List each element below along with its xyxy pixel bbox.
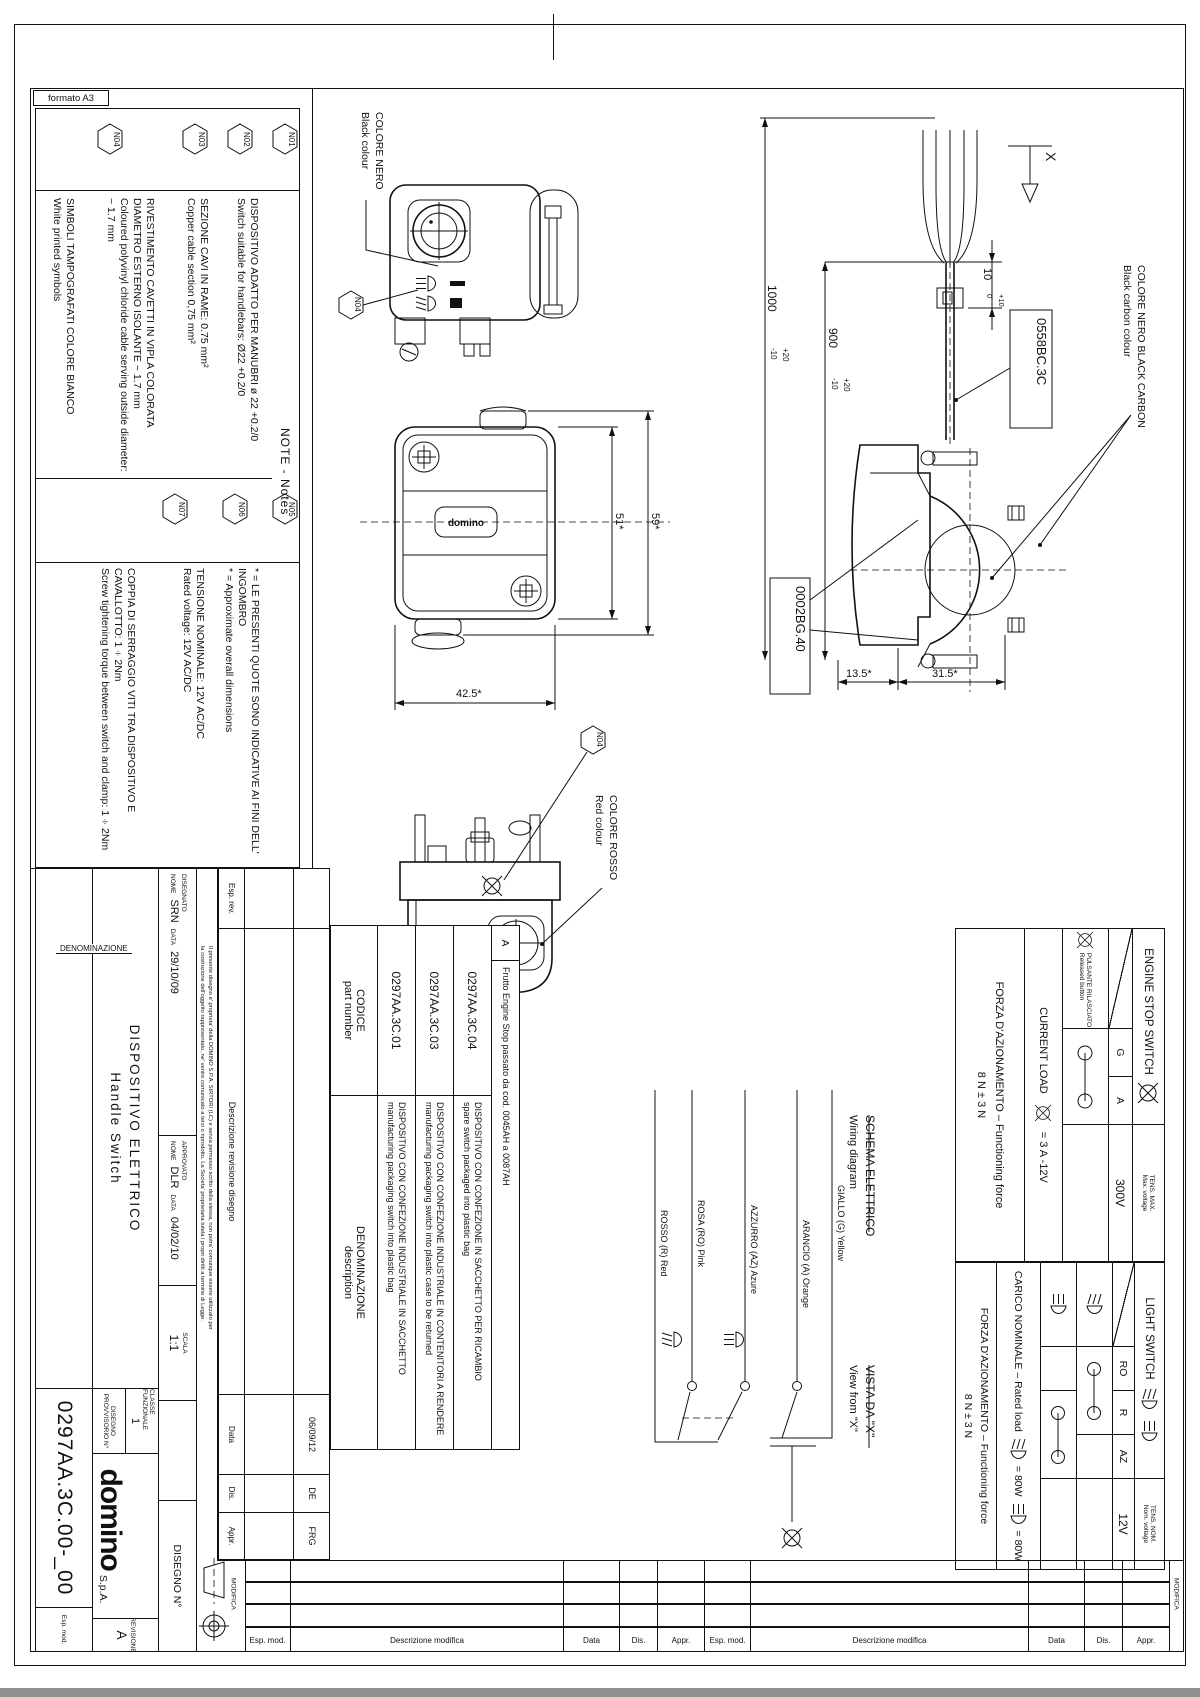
hexagon-N02-icon: N02 <box>228 124 252 154</box>
rated-load-high: = 80W <box>1013 1531 1025 1562</box>
black-carbon-label: COLORE NERO BLACK CARBON Black carbon co… <box>990 265 1147 580</box>
part-code: 0297AA.3C.03 <box>415 926 453 1096</box>
low-beam-icon <box>662 1332 682 1347</box>
dim-1000: 1000 +20 -10 <box>762 118 790 660</box>
note-N02-text: SEZIONE CAVI IN RAME: 0.75 mm² Copper ca… <box>184 198 210 474</box>
part-code: 0297AA.3C.01 <box>377 926 415 1096</box>
svg-text:N05: N05 <box>287 502 296 517</box>
svg-text:View from "X": View from "X" <box>847 1365 859 1432</box>
spa-text: S.p.A. <box>97 1575 109 1604</box>
notes-divider-2 <box>35 478 272 479</box>
light-force-label: FORZA D'AZIONAMENTO – Functioning force <box>978 1308 990 1525</box>
light-contact-closed-R-AZ <box>1040 1391 1076 1479</box>
wiring-schematic: ROSSO (R) Red ROSA (RO) Pink AZZURRO (AZ… <box>620 1070 880 1570</box>
drawn-date: 29/10/09 <box>168 951 180 994</box>
engine-contact-closed-G-A <box>1062 1029 1108 1125</box>
modifica-empty-3 <box>244 869 293 929</box>
view-x-letter: X <box>1043 152 1059 162</box>
part-desc-en: manufacturing packaging switch into plas… <box>386 1102 397 1293</box>
revision-letter: A <box>491 926 519 961</box>
svg-text:-10: -10 <box>769 348 778 360</box>
note-N04-en: White printed symbols <box>50 198 63 474</box>
svg-text:59*: 59* <box>649 513 661 530</box>
approved-date: 04/02/10 <box>168 1217 180 1260</box>
drawing-sheet: formato A3 N04 N03 N02 N01 DISPOSITIVO A… <box>0 0 1200 1697</box>
light-switch-table: LIGHT SWITCH TENS. NOM. Nom. voltage RO … <box>955 1262 1165 1570</box>
note-N05-it: * = LE PRESENTI QUOTE SONO INDICATIVE AI… <box>235 568 261 860</box>
light-vnom-span <box>1076 1479 1112 1569</box>
disegnato-cell: DISEGNATO NOME SRN DATA 29/10/09 <box>158 869 196 1136</box>
part-desc: DISPOSITIVO CON CONFEZIONE INDUSTRIALE I… <box>377 1096 415 1449</box>
footer-appr: Appr. <box>658 1628 704 1652</box>
note-N06-it: TENSIONE NOMINALE: 12V AC/DC <box>193 568 206 860</box>
note-N07-en: Screw tightening torque between switch a… <box>98 568 111 860</box>
note-N02-it: SEZIONE CAVI IN RAME: 0.75 mm² <box>197 198 210 474</box>
light-empty-RO <box>1040 1347 1076 1391</box>
vnom-label-en: Nom. voltage <box>1143 1505 1150 1543</box>
svg-text:51*: 51* <box>613 513 625 530</box>
area-divider <box>312 88 313 868</box>
low-beam-icon <box>1143 1389 1158 1409</box>
part-desc-en: manufacturing packaging switch into plas… <box>424 1102 435 1355</box>
dim-51: 51* <box>558 427 625 619</box>
domino-logo-text: domino <box>97 1469 123 1571</box>
engine-vmax-value: 300V <box>1108 1125 1132 1261</box>
desc-header: DENOMINAZIONE description <box>331 1096 377 1449</box>
svg-text:0: 0 <box>985 294 994 298</box>
engine-force: FORZA D'AZIONAMENTO – Functioning force … <box>956 929 1024 1261</box>
part-desc-en: spare switch packaged into plastic bag <box>462 1102 473 1256</box>
red-colour-label-en: Red colour <box>593 795 605 846</box>
svg-text:10: 10 <box>981 268 993 280</box>
wire-label-rosso: ROSSO (R) Red <box>659 1210 669 1277</box>
light-empty-AZ <box>1076 1435 1112 1479</box>
dim-10: 10 +10 0 <box>968 240 1006 330</box>
footer-dis: Dis. <box>620 1628 658 1652</box>
engine-vmax-span <box>1062 1125 1108 1261</box>
rated-load-low: = 80W <box>1013 1466 1025 1497</box>
engine-stop-contact <box>770 1382 816 1549</box>
clamp-code-label: 0002BG.40 <box>770 520 918 694</box>
dis-header: Dis. <box>218 1475 244 1513</box>
dim-59: 59* <box>463 411 661 635</box>
footer-esp-mod: Esp. mod. <box>705 1628 751 1652</box>
format-label-text: formato A3 <box>48 93 94 104</box>
black-colour-label-en: Black colour <box>359 112 371 170</box>
note-N04-it: SIMBOLI TAMPOGRAFATI COLORE BIANCO <box>63 198 76 474</box>
hexagon-N05-icon: N05 <box>273 494 297 524</box>
engine-stop-symbol-icon <box>782 1528 802 1548</box>
code-header-it: CODICE <box>354 989 366 1032</box>
svg-text:31.5*: 31.5* <box>932 668 958 680</box>
approvato-label: APPROVATO <box>180 1141 187 1180</box>
footer-descrizione: Descrizione modifica <box>751 1628 1029 1652</box>
wire-label-giallo: GIALLO (G) Yellow <box>836 1185 846 1262</box>
hexagon-N06-icon: N06 <box>223 494 247 524</box>
drawing-number: 0297AA.3C.00-_00 <box>36 1389 92 1608</box>
svg-text:-10: -10 <box>830 378 839 390</box>
vnom-label-it: TENS. NOM. <box>1150 1505 1157 1543</box>
svg-text:0558BC.3C: 0558BC.3C <box>1034 318 1049 385</box>
modifica-empty-7 <box>244 1513 293 1559</box>
red-colour-leader <box>542 888 602 944</box>
data-header: Data <box>218 1395 244 1475</box>
code-header: CODICE part number <box>331 926 377 1096</box>
svg-text:Wiring diagram: Wiring diagram <box>847 1115 859 1189</box>
hexagon-N07-icon: N07 <box>163 494 187 524</box>
high-beam-icon <box>1012 1504 1027 1524</box>
note-N03-en: Coloured polyvinyl chloride cable servin… <box>104 198 130 474</box>
note-N01-it: DISPOSITIVO ADATTO PER MANUBRI ø 22 +0.2… <box>247 198 260 474</box>
projection-symbol-icon <box>198 1558 230 1650</box>
svg-text:N02: N02 <box>242 132 251 147</box>
nome-label: NOME <box>169 1141 176 1161</box>
page-edge-shadow <box>0 1688 1200 1697</box>
light-table-title: LIGHT SWITCH <box>1134 1263 1164 1479</box>
note-N04-text: SIMBOLI TAMPOGRAFATI COLORE BIANCO White… <box>50 198 76 474</box>
high-beam-icon <box>1052 1294 1067 1314</box>
format-label: formato A3 <box>33 90 109 106</box>
modifica-dis: DE <box>293 1475 329 1513</box>
note-N06-en: Rated voltage: 12V AC/DC <box>180 568 193 860</box>
scale-value: 1:1 <box>167 1335 181 1352</box>
svg-text:VISTA DA "X": VISTA DA "X" <box>863 1365 877 1437</box>
note-N03-text: RIVESTIMENTO CAVETTI IN VIPLA COLORATA D… <box>104 198 156 474</box>
hexagon-N01-icon: N01 <box>273 124 297 154</box>
light-row-high <box>1040 1263 1076 1347</box>
switch-front-body <box>390 185 578 361</box>
light-switch-contacts <box>662 1332 750 1440</box>
light-rated-load: CARICO NOMINALE – Rated load = 80W = 80W <box>996 1263 1040 1569</box>
desc-header-en: description <box>342 1246 354 1299</box>
svg-text:13.5*: 13.5* <box>846 668 872 680</box>
wire-fan <box>923 130 977 265</box>
appr-header: Appr. <box>218 1513 244 1559</box>
engine-force-label: FORZA D'AZIONAMENTO – Functioning force <box>993 982 1005 1209</box>
device-name-it: DISPOSITIVO ELETTRICO <box>128 1025 143 1233</box>
title-block: DISEGNATO NOME SRN DATA 29/10/09 APPROVA… <box>35 868 197 1652</box>
legal-text: Il presente disegno e' proprieta' della … <box>198 946 214 1554</box>
note-N01-text: DISPOSITIVO ADATTO PER MANUBRI ø 22 +0.2… <box>234 198 260 474</box>
current-load-label: CURRENT LOAD <box>1038 1007 1050 1094</box>
svg-text:0002BG.40: 0002BG.40 <box>793 586 808 652</box>
engine-stop-icon <box>1139 1083 1159 1103</box>
legal-line-2: la costruzione dell'oggetto rappresentat… <box>198 946 206 1554</box>
light-vnom-header: TENS. NOM. Nom. voltage <box>1134 1479 1164 1569</box>
light-force: FORZA D'AZIONAMENTO – Functioning force … <box>956 1263 996 1569</box>
released-label-it: PULSANTE RILASCIATO <box>1086 953 1093 1027</box>
part-number-table: A Frutto Engine Stop passato da cod. 004… <box>330 925 520 1450</box>
device-name-en: Handle Switch <box>109 1072 124 1184</box>
svg-text:900: 900 <box>826 328 840 348</box>
part-desc-it: DISPOSITIVO CON CONFEZIONE INDUSTRIALE I… <box>435 1102 446 1435</box>
vmax-label-it: TENS. MAX. <box>1149 1175 1156 1212</box>
dim-900: 900 +20 -10 <box>822 262 851 660</box>
note-N05-en: * = Approximate overall dimensions <box>222 568 235 860</box>
light-col-RO: RO <box>1112 1347 1134 1391</box>
data-label: DATA <box>169 1195 176 1211</box>
svg-text:N04: N04 <box>595 732 604 747</box>
light-col-R: R <box>1112 1391 1134 1435</box>
red-colour-label-it: COLORE ROSSO <box>607 795 619 880</box>
footer-right-divider <box>1169 1560 1170 1652</box>
note-N03-it: RIVESTIMENTO CAVETTI IN VIPLA COLORATA D… <box>130 198 156 474</box>
revisione-value: A <box>115 1630 130 1639</box>
light-diag-cell <box>1112 1263 1134 1347</box>
engine-table-title: ENGINE STOP SWITCH <box>1132 929 1164 1125</box>
part-desc: DISPOSITIVO CON CONFEZIONE IN SACCHETTO … <box>453 1096 491 1449</box>
footer-descrizione: Descrizione modifica <box>291 1628 564 1652</box>
part-code: 0297AA.3C.04 <box>453 926 491 1096</box>
black-colour-label-it: COLORE NERO <box>373 112 385 190</box>
revisione-label: REVISIONE <box>130 1619 137 1651</box>
high-beam-icon <box>416 276 436 291</box>
modifica-date: 06/09/12 <box>293 1395 329 1475</box>
scala-label: SCALA <box>181 1332 188 1353</box>
modifica-empty-2 <box>293 929 329 1395</box>
cable <box>825 250 970 445</box>
switch-back-body: domino <box>395 407 555 649</box>
esp-mod-cell: Esp. mod. <box>36 1608 92 1651</box>
modifica-footer-label-right: MODIFICA <box>1172 1578 1180 1610</box>
black-colour-leader <box>366 200 438 266</box>
engine-diag-cell <box>1108 929 1132 1029</box>
footer-appr: Appr. <box>1123 1628 1169 1652</box>
nome-label: NOME <box>169 874 176 894</box>
light-vnom-span2 <box>1040 1479 1076 1569</box>
approved-by: DLR <box>168 1167 180 1189</box>
svg-text:N04: N04 <box>112 132 121 147</box>
classe-stack: CLASSE FUNZIONALE 1 DISEGNO PROVVISORIO … <box>92 1389 158 1454</box>
svg-text:SCHEMA ELETTRICO: SCHEMA ELETTRICO <box>863 1115 877 1236</box>
notes-divider-1 <box>35 190 300 191</box>
svg-text:N06: N06 <box>237 502 246 517</box>
svg-text:N03: N03 <box>197 132 206 147</box>
modifica-empty-5 <box>244 1395 293 1475</box>
engine-row-header: PULSANTE RILASCIATO Released button <box>1062 929 1108 1029</box>
part-desc-it: DISPOSITIVO CON CONFEZIONE IN SACCHETTO … <box>473 1102 484 1381</box>
revisione-cell: REVISIONE A <box>92 1619 158 1651</box>
classe-label: CLASSE FUNZIONALE <box>141 1389 155 1453</box>
front-symbols <box>416 276 465 311</box>
hexagon-N04-front-icon: N04 <box>339 290 418 319</box>
engine-current-load: CURRENT LOAD = 3 A -12V <box>1024 929 1062 1261</box>
harness-clamp-drawing: 1000 +20 -10 900 +20 -10 10 +10 0 X 0558… <box>740 100 1160 700</box>
engine-force-value: 8 N ± 3 N <box>975 1072 987 1118</box>
footer-dis: Dis. <box>1085 1628 1123 1652</box>
vmax-label-en: Max. voltage <box>1142 1175 1149 1212</box>
modifica-appr: FRG <box>293 1513 329 1559</box>
code-header-en: part number <box>342 981 354 1040</box>
high-beam-icon <box>724 1332 744 1347</box>
note-N06-text: TENSIONE NOMINALE: 12V AC/DC Rated volta… <box>180 568 206 860</box>
back-view-drawing: domino 51* 59* 42.5* <box>360 395 670 745</box>
footer-data: Data <box>564 1628 620 1652</box>
wire-label-rosa: ROSA (RO) Pink <box>696 1200 706 1268</box>
note-hexagons-row1: N04 N03 N02 N01 <box>35 108 300 190</box>
hexagon-N04-icon: N04 <box>98 124 122 154</box>
logo-on-part: domino <box>448 518 484 529</box>
hexagon-N03-icon: N03 <box>183 124 207 154</box>
scala-cell: SCALA 1:1 <box>158 1286 196 1401</box>
note-N07-text: COPPIA DI SERRAGGIO VITI TRA DISPOSITIVO… <box>98 568 137 860</box>
light-table-title-text: LIGHT SWITCH <box>1144 1297 1156 1379</box>
light-force-value: 8 N ± 3 N <box>962 1394 974 1438</box>
center-tick <box>553 14 554 60</box>
part-desc-it: DISPOSITIVO CON CONFEZIONE INDUSTRIALE I… <box>397 1102 408 1375</box>
svg-text:42.5*: 42.5* <box>456 688 482 700</box>
svg-text:+20: +20 <box>781 348 790 362</box>
engine-col-A: A <box>1108 1077 1132 1125</box>
light-vnom-value: 12V <box>1112 1479 1134 1569</box>
engine-table-title-text: ENGINE STOP SWITCH <box>1143 948 1155 1075</box>
released-label-en: Released button <box>1079 953 1086 1027</box>
modifica-strip: 06/09/12 DE FRG Esp. rev. Descrizione re… <box>217 868 330 1560</box>
svg-text:COLORE NERO BLACK CARBON: COLORE NERO BLACK CARBON <box>1135 265 1147 428</box>
modifica-footer-label-left: MODIFICA <box>229 1578 237 1610</box>
modifica-empty-6 <box>244 1475 293 1513</box>
wire-label-azzurro: AZZURRO (AZ) Azure <box>749 1205 759 1294</box>
schematic-titles: SCHEMA ELETTRICO Wiring diagram VISTA DA… <box>847 1115 877 1448</box>
low-beam-icon <box>416 296 436 311</box>
svg-text:N01: N01 <box>287 132 296 147</box>
footer-table-right: Esp. mod. Descrizione modifica Data Dis.… <box>705 1560 1169 1652</box>
svg-text:+20: +20 <box>842 378 851 392</box>
engine-stop-symbol-icon <box>482 876 502 896</box>
disegno-provvisorio-label: DISEGNO PROVVISORIO N° <box>93 1389 125 1453</box>
svg-text:N07: N07 <box>177 502 186 517</box>
desc-header-it: DENOMINAZIONE <box>354 1226 366 1319</box>
footer-table-left: Esp. mod. Descrizione modifica Data Dis.… <box>245 1560 705 1652</box>
legal-line-1: Il presente disegno e' proprieta' della … <box>206 946 214 1554</box>
drawn-by: SRN <box>168 900 180 923</box>
hexagon-N04-bottom-icon: N04 <box>504 726 605 880</box>
note-N07-it: COPPIA DI SERRAGGIO VITI TRA DISPOSITIVO… <box>111 568 137 860</box>
square-symbol <box>450 298 462 308</box>
light-row-low <box>1076 1263 1112 1347</box>
engine-col-G: G <box>1108 1029 1132 1077</box>
notes-divider-3 <box>35 562 300 563</box>
modifica-empty-4 <box>244 929 293 1395</box>
company-logo: domino S.p.A. <box>92 1454 158 1619</box>
svg-text:+10: +10 <box>997 294 1006 307</box>
note-N01-en: Switch suitable for handlebars: Ø22 +0.2… <box>234 198 247 474</box>
part-desc: DISPOSITIVO CON CONFEZIONE INDUSTRIALE I… <box>415 1096 453 1449</box>
cable-code-label: 0558BC.3C <box>954 310 1052 428</box>
current-load-value: = 3 A -12V <box>1038 1132 1050 1183</box>
footer-esp-mod: Esp. mod. <box>245 1628 291 1652</box>
rated-load-label: CARICO NOMINALE – Rated load <box>1013 1271 1025 1432</box>
engine-stop-icon <box>1078 932 1094 948</box>
svg-text:N04: N04 <box>353 297 362 312</box>
denominazione-caption: DENOMINAZIONE <box>56 944 132 954</box>
disegnato-label: DISEGNATO <box>180 874 187 912</box>
footer-data: Data <box>1029 1628 1085 1652</box>
light-contact-closed-RO-R <box>1076 1347 1112 1435</box>
esp-rev-label: Esp. rev. <box>218 869 244 929</box>
approvato-cell: APPROVATO NOME DLR DATA 04/02/10 <box>158 1136 196 1286</box>
revision-description: Frutto Engine Stop passato da cod. 0045A… <box>491 961 519 1449</box>
engine-vmax-header: TENS. MAX. Max. voltage <box>1132 1125 1164 1261</box>
dash-symbol <box>450 281 465 286</box>
svg-text:1000: 1000 <box>765 285 779 312</box>
engine-stop-table: ENGINE STOP SWITCH TENS. MAX. Max. volta… <box>955 928 1165 1262</box>
note-N02-en: Copper cable section 0,75 mm² <box>184 198 197 474</box>
high-beam-icon <box>1143 1421 1158 1441</box>
light-col-AZ: AZ <box>1112 1435 1134 1479</box>
side-view-clamp <box>850 445 1070 692</box>
low-beam-icon <box>1012 1439 1027 1459</box>
data-label: DATA <box>169 929 176 945</box>
engine-stop-icon <box>1036 1105 1052 1121</box>
wire-label-arancio: ARANCIO (A) Orange <box>801 1220 811 1308</box>
classe-value: 1 <box>129 1418 141 1424</box>
modifica-empty-1 <box>293 869 329 929</box>
titleblock-spare-cell <box>158 1401 196 1501</box>
dim-42-5: 42.5* <box>395 625 555 710</box>
descrizione-revisione-label: Descrizione revisione disegno <box>218 929 244 1395</box>
low-beam-icon <box>1088 1294 1103 1314</box>
note-N05-text: * = LE PRESENTI QUOTE SONO INDICATIVE AI… <box>222 568 261 860</box>
front-view-drawing: COLORE NERO Black colour N04 <box>330 100 590 380</box>
disegno-n-label: DISEGNO N° <box>158 1501 196 1651</box>
svg-text:Black carbon colour: Black carbon colour <box>1121 265 1133 358</box>
note-hexagons-row2: N07 N06 N05 <box>35 482 300 562</box>
view-x-arrow: X <box>1008 146 1059 202</box>
